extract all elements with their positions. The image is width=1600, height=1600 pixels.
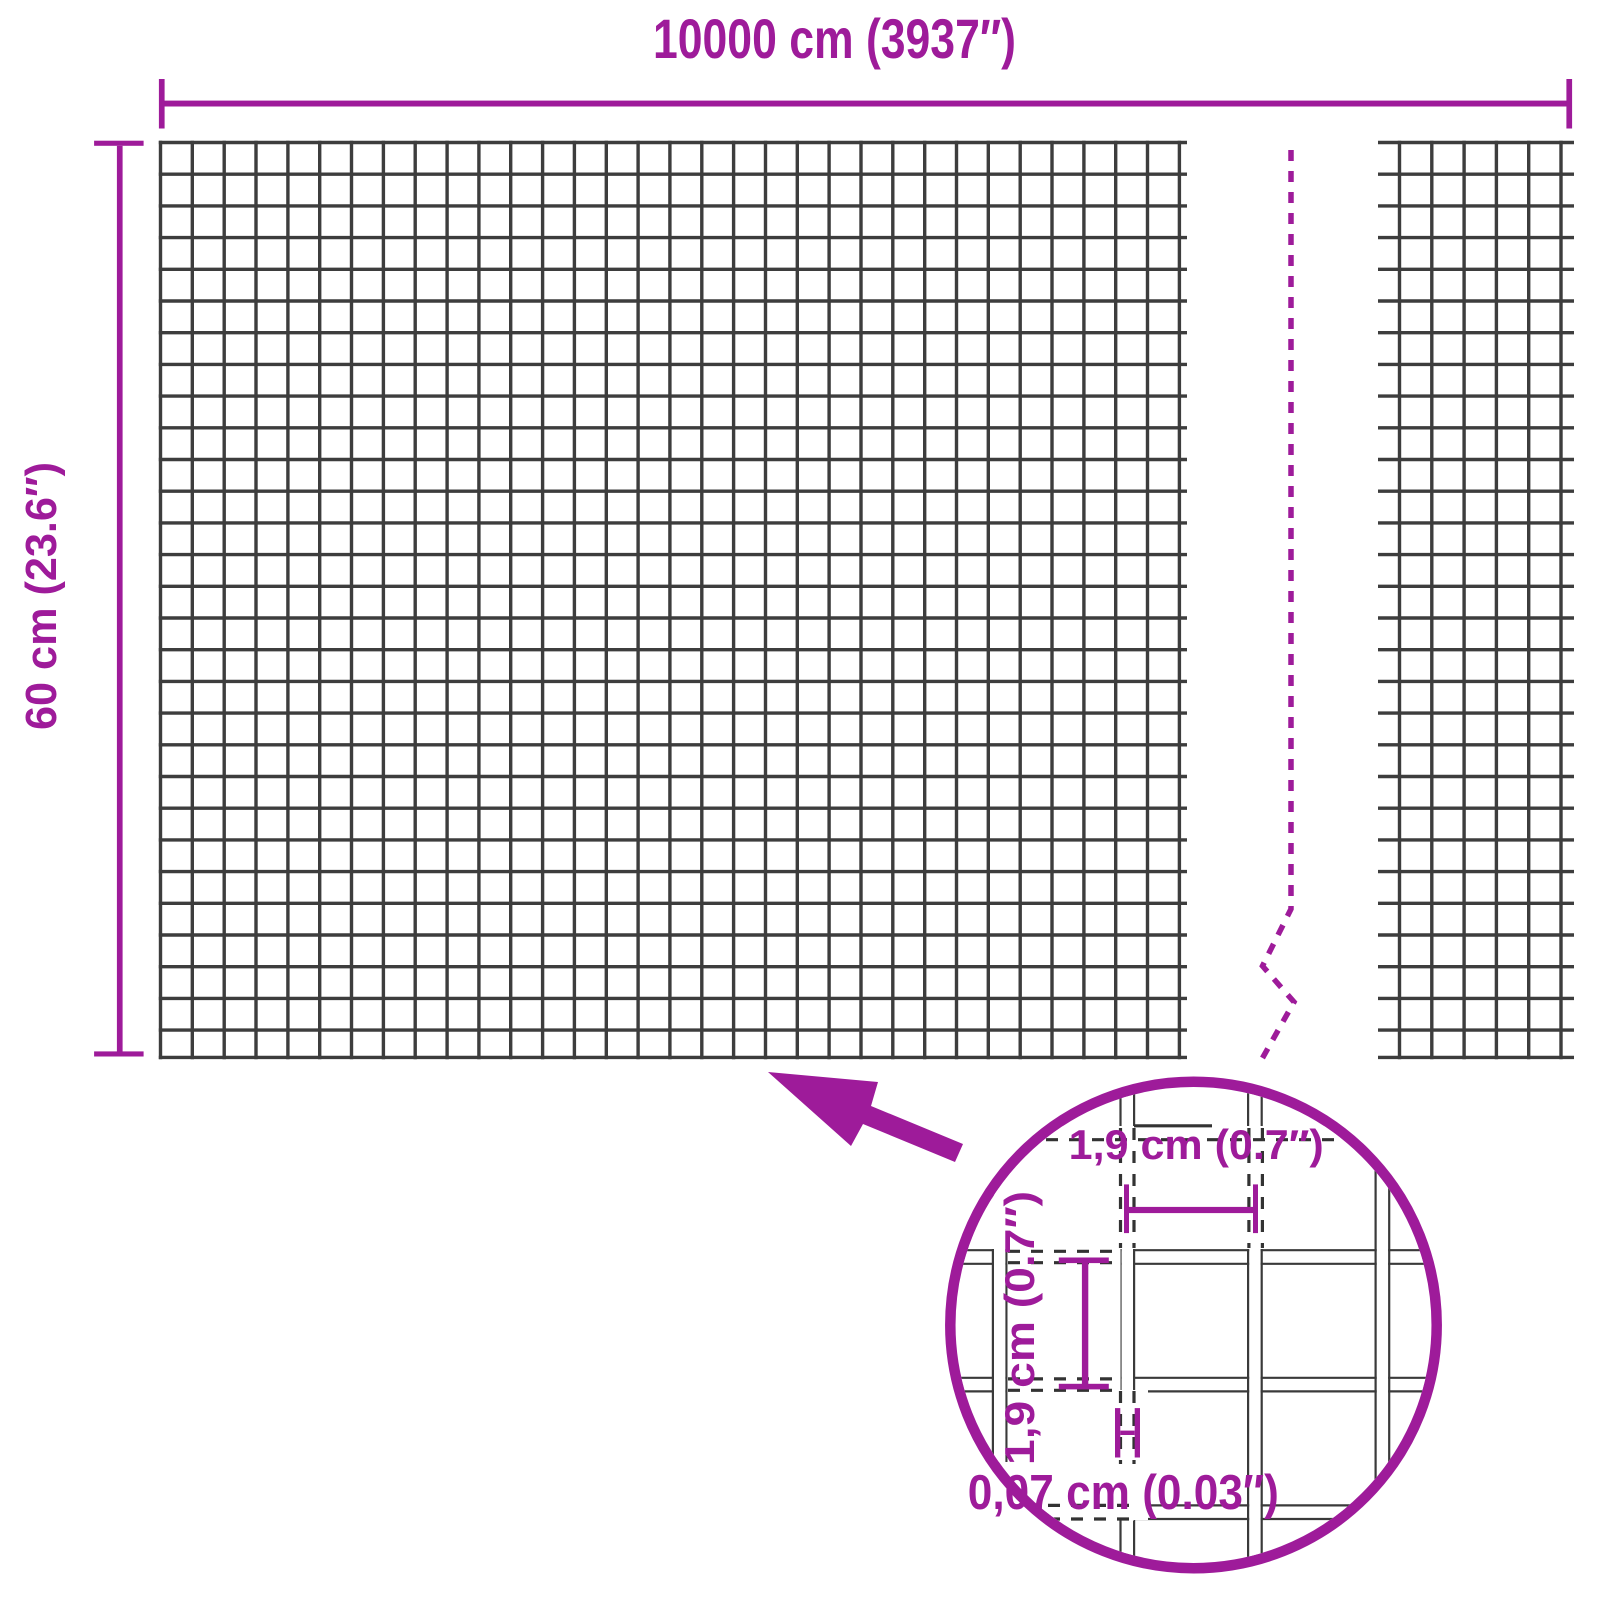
svg-text:0,07 cm (0.03″): 0,07 cm (0.03″): [968, 1466, 1279, 1520]
svg-text:10000 cm (3937″): 10000 cm (3937″): [653, 7, 1016, 70]
svg-text:1,9 cm (0.7″): 1,9 cm (0.7″): [996, 1191, 1043, 1465]
svg-text:60 cm (23.6″): 60 cm (23.6″): [17, 462, 66, 730]
svg-text:1,9 cm (0.7″): 1,9 cm (0.7″): [1069, 1121, 1324, 1168]
